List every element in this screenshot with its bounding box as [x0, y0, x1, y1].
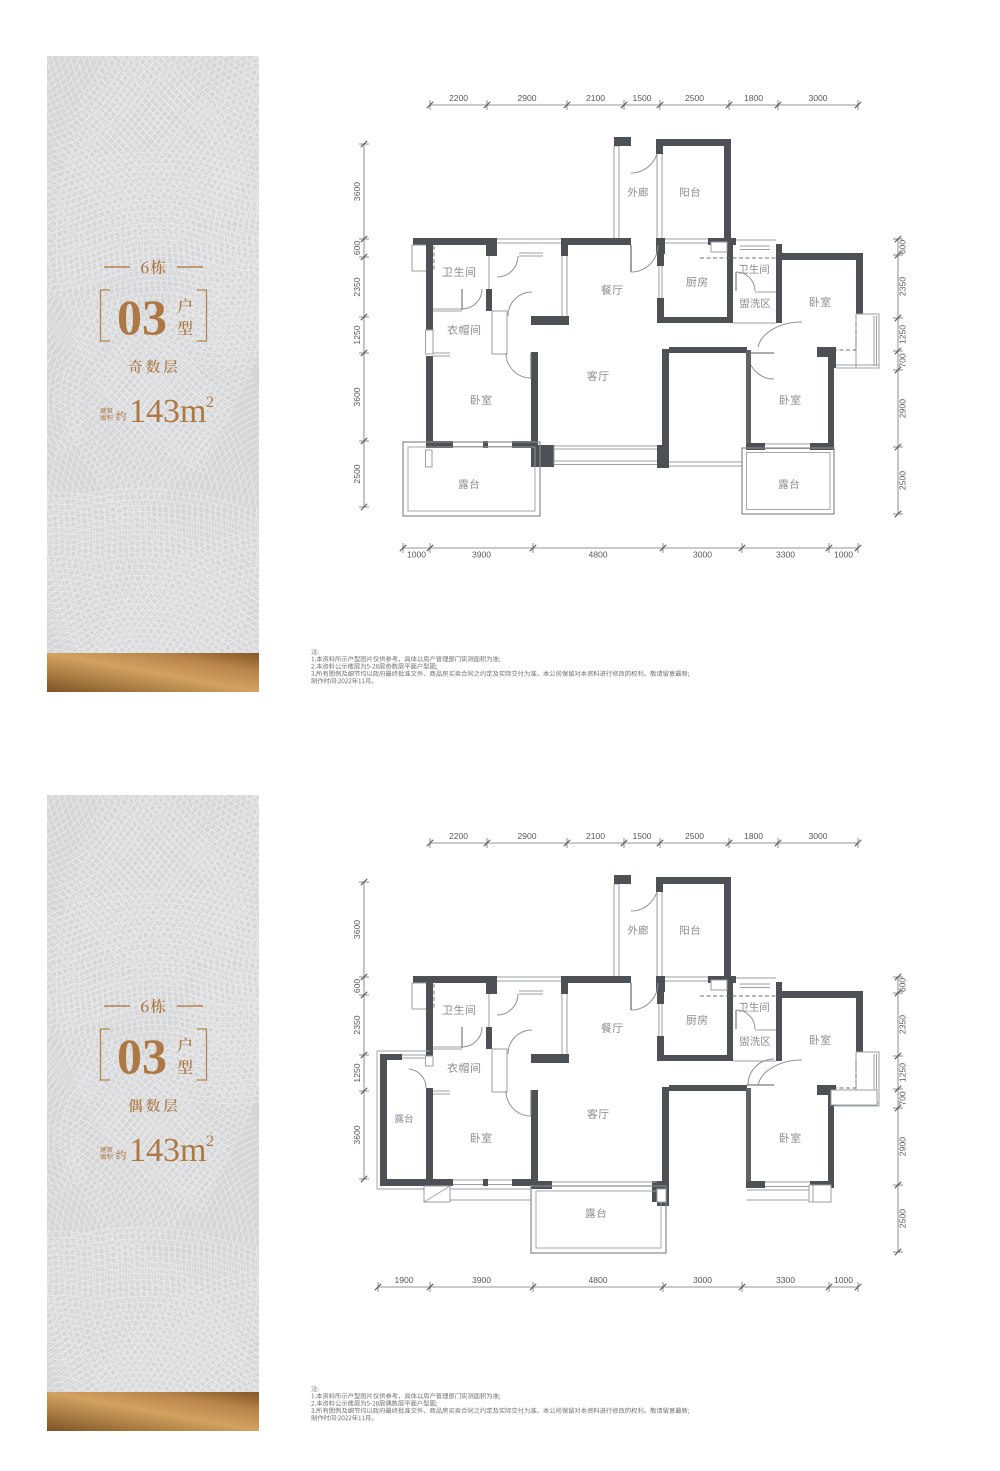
svg-text:3900: 3900 — [472, 550, 491, 560]
svg-text:2900: 2900 — [517, 93, 536, 103]
svg-text:3300: 3300 — [776, 550, 795, 560]
svg-text:2500: 2500 — [352, 464, 362, 483]
svg-text:1250: 1250 — [898, 325, 908, 344]
svg-text:143m: 143m — [129, 1132, 206, 1169]
svg-text:2500: 2500 — [685, 93, 704, 103]
svg-text:1500: 1500 — [632, 93, 651, 103]
svg-text:3300: 3300 — [776, 1275, 795, 1285]
svg-text:3900: 3900 — [472, 1275, 491, 1285]
svg-text:1800: 1800 — [744, 93, 763, 103]
svg-text:2900: 2900 — [517, 831, 536, 841]
svg-text:4800: 4800 — [588, 1275, 607, 1285]
svg-text:2100: 2100 — [586, 93, 605, 103]
svg-text:1250: 1250 — [352, 1063, 362, 1082]
svg-text:2350: 2350 — [898, 277, 908, 296]
svg-text:2350: 2350 — [898, 1015, 908, 1034]
svg-text:1250: 1250 — [352, 325, 362, 344]
svg-text:1900: 1900 — [394, 1275, 413, 1285]
svg-text:3600: 3600 — [352, 182, 362, 201]
svg-text:3600: 3600 — [352, 1125, 362, 1144]
svg-text:2200: 2200 — [449, 831, 468, 841]
svg-text:4800: 4800 — [588, 550, 607, 560]
svg-text:3600: 3600 — [352, 920, 362, 939]
svg-text:1000: 1000 — [834, 1275, 853, 1285]
svg-text:1000: 1000 — [407, 550, 426, 560]
svg-text:2500: 2500 — [898, 1209, 908, 1228]
svg-text:2100: 2100 — [586, 831, 605, 841]
svg-text:700: 700 — [898, 353, 908, 368]
svg-text:2: 2 — [206, 1133, 214, 1150]
svg-text:03: 03 — [117, 289, 167, 345]
svg-text:600: 600 — [898, 240, 908, 255]
svg-text:3000: 3000 — [808, 831, 827, 841]
svg-text:1500: 1500 — [632, 831, 651, 841]
svg-text:2350: 2350 — [352, 277, 362, 296]
svg-text:600: 600 — [352, 241, 362, 256]
svg-text:2500: 2500 — [898, 471, 908, 490]
svg-text:2900: 2900 — [898, 399, 908, 418]
svg-text:1250: 1250 — [898, 1063, 908, 1082]
svg-text:2350: 2350 — [352, 1015, 362, 1034]
svg-text:3000: 3000 — [693, 1275, 712, 1285]
svg-text:2200: 2200 — [449, 93, 468, 103]
svg-text:143m: 143m — [129, 393, 206, 430]
svg-text:1800: 1800 — [744, 831, 763, 841]
svg-text:1000: 1000 — [834, 550, 853, 560]
svg-text:600: 600 — [898, 978, 908, 993]
svg-text:600: 600 — [352, 979, 362, 994]
svg-text:3000: 3000 — [808, 93, 827, 103]
svg-text:2900: 2900 — [898, 1137, 908, 1156]
svg-text:700: 700 — [898, 1091, 908, 1106]
svg-text:2500: 2500 — [685, 831, 704, 841]
svg-text:3600: 3600 — [352, 387, 362, 406]
svg-text:3000: 3000 — [693, 550, 712, 560]
svg-text:2: 2 — [206, 394, 214, 411]
svg-text:03: 03 — [117, 1028, 167, 1084]
